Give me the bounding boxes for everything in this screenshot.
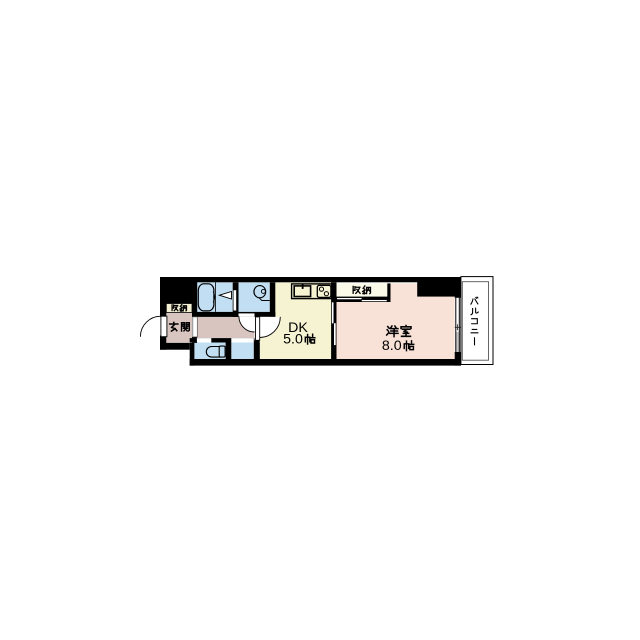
svg-text:8.0: 8.0 <box>382 338 402 354</box>
svg-text:5.0: 5.0 <box>283 332 303 348</box>
